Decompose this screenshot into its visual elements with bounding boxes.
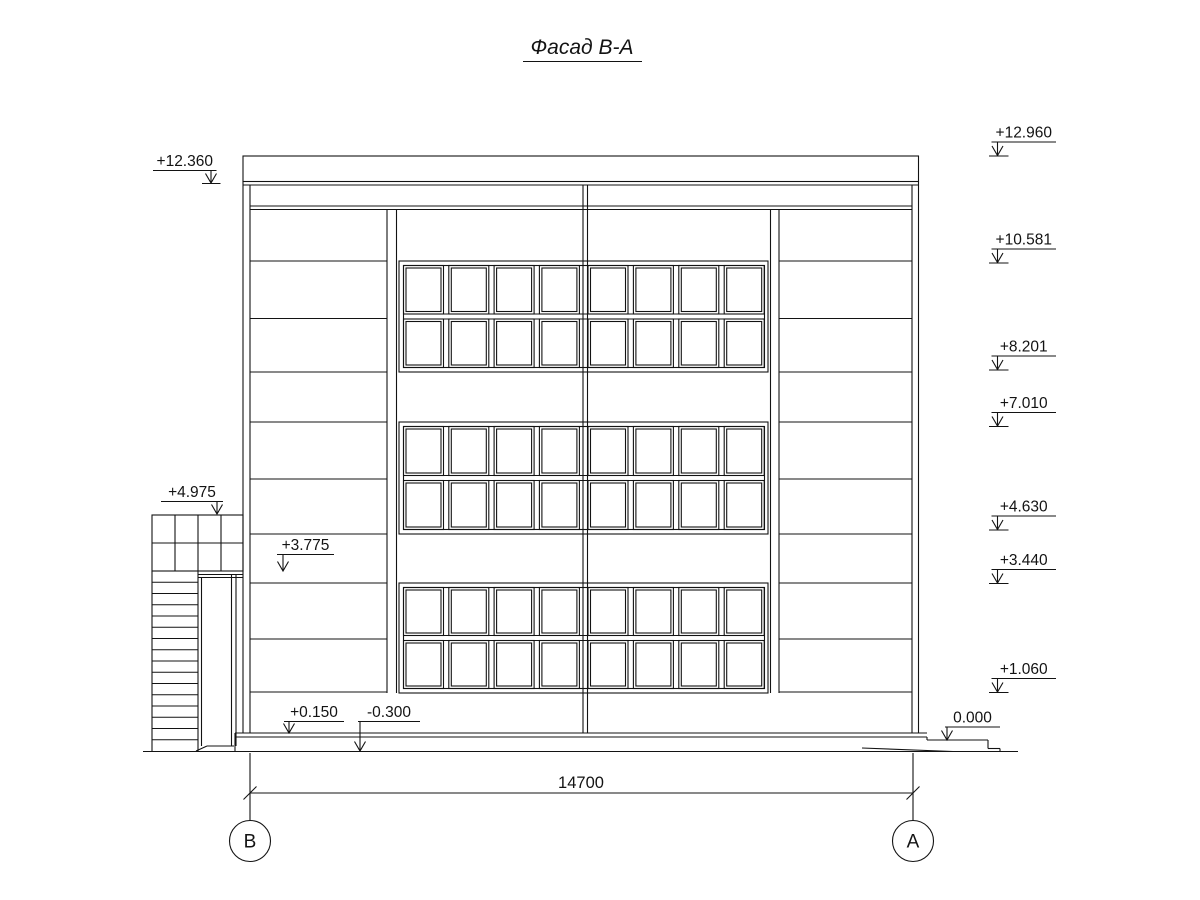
elevation-mark: +12.960	[989, 125, 1056, 157]
window-cell	[404, 481, 444, 530]
elevation-label: +0.150	[290, 704, 338, 721]
window-cell	[588, 319, 628, 368]
window-cell	[588, 266, 628, 315]
elevation-label: +12.360	[157, 153, 214, 170]
axis-label-b: В	[244, 832, 257, 853]
window-cell	[633, 481, 673, 530]
window-cell	[679, 641, 719, 689]
building-outline	[143, 156, 1018, 752]
stair-tower	[152, 515, 243, 751]
elevation-label: +3.775	[282, 537, 330, 554]
elevation-mark: +3.775	[277, 537, 334, 571]
window-cell	[539, 588, 579, 636]
elevation-mark: 0.000	[942, 710, 1001, 741]
entrance-door	[196, 575, 243, 752]
elevation-mark: +10.581	[989, 232, 1056, 264]
axis-label-a: А	[907, 832, 920, 853]
window-cell	[724, 481, 764, 530]
elevation-mark: +4.630	[989, 499, 1056, 531]
elevation-mark: +4.975	[161, 484, 223, 514]
window-cell	[588, 427, 628, 476]
window-cell	[449, 427, 489, 476]
window-cell	[404, 588, 444, 636]
window-cell	[633, 319, 673, 368]
window-cell	[494, 427, 534, 476]
elevation-marks: +12.360+4.975+3.775+0.150-0.300+12.960+1…	[153, 125, 1056, 752]
elevation-mark: +0.150	[284, 704, 345, 733]
window-cell	[679, 319, 719, 368]
window-cell	[633, 588, 673, 636]
window-cell	[679, 588, 719, 636]
window-cell	[494, 319, 534, 368]
window-cell	[539, 641, 579, 689]
window-cell	[588, 588, 628, 636]
elevation-mark: -0.300	[355, 704, 421, 751]
window-cell	[724, 588, 764, 636]
window-cell	[449, 266, 489, 315]
elevation-label: +7.010	[1000, 395, 1048, 412]
drawing-sheet: Фасад В-А	[0, 0, 1200, 900]
window-cell	[539, 266, 579, 315]
elevation-label: +4.630	[1000, 499, 1048, 516]
window-cell	[404, 319, 444, 368]
window-cell	[494, 266, 534, 315]
window-cell	[724, 641, 764, 689]
window-cell	[633, 427, 673, 476]
window-cell	[724, 319, 764, 368]
dimension-value: 14700	[558, 774, 604, 792]
elevation-mark: +12.360	[153, 153, 221, 184]
dimension-group: 14700 В А	[230, 753, 934, 862]
window-cell	[679, 427, 719, 476]
elevation-mark: +8.201	[989, 339, 1056, 371]
window-cell	[724, 266, 764, 315]
window-cell	[494, 641, 534, 689]
drawing-title: Фасад В-А	[530, 36, 633, 59]
elevation-label: 0.000	[953, 710, 992, 727]
window-cell	[679, 266, 719, 315]
window-cell	[588, 641, 628, 689]
elevation-label: +3.440	[1000, 552, 1048, 569]
window-cell	[449, 588, 489, 636]
window-cell	[539, 319, 579, 368]
window-cell	[633, 641, 673, 689]
window-cell	[679, 481, 719, 530]
window-cell	[449, 641, 489, 689]
window-cell	[633, 266, 673, 315]
window-cell	[404, 427, 444, 476]
window-cell	[494, 481, 534, 530]
elevation-label: -0.300	[367, 704, 411, 721]
window-cell	[494, 588, 534, 636]
window-cell	[404, 641, 444, 689]
elevation-label: +4.975	[168, 484, 216, 501]
window-cell	[404, 266, 444, 315]
parapet	[243, 156, 919, 182]
elevation-mark: +7.010	[989, 395, 1056, 427]
elevation-mark: +1.060	[989, 661, 1056, 693]
elevation-label: +10.581	[996, 232, 1052, 249]
elevation-label: +12.960	[996, 125, 1053, 142]
elevation-label: +8.201	[1000, 339, 1048, 356]
window-cell	[539, 427, 579, 476]
window-cell	[539, 481, 579, 530]
elevation-label: +1.060	[1000, 661, 1048, 678]
panel-joint-lines	[250, 261, 912, 692]
window-cell	[724, 427, 764, 476]
window-cell	[449, 481, 489, 530]
elevation-mark: +3.440	[989, 552, 1056, 584]
facade-drawing: Фасад В-А	[0, 0, 1200, 900]
window-cell	[449, 319, 489, 368]
window-cell	[588, 481, 628, 530]
